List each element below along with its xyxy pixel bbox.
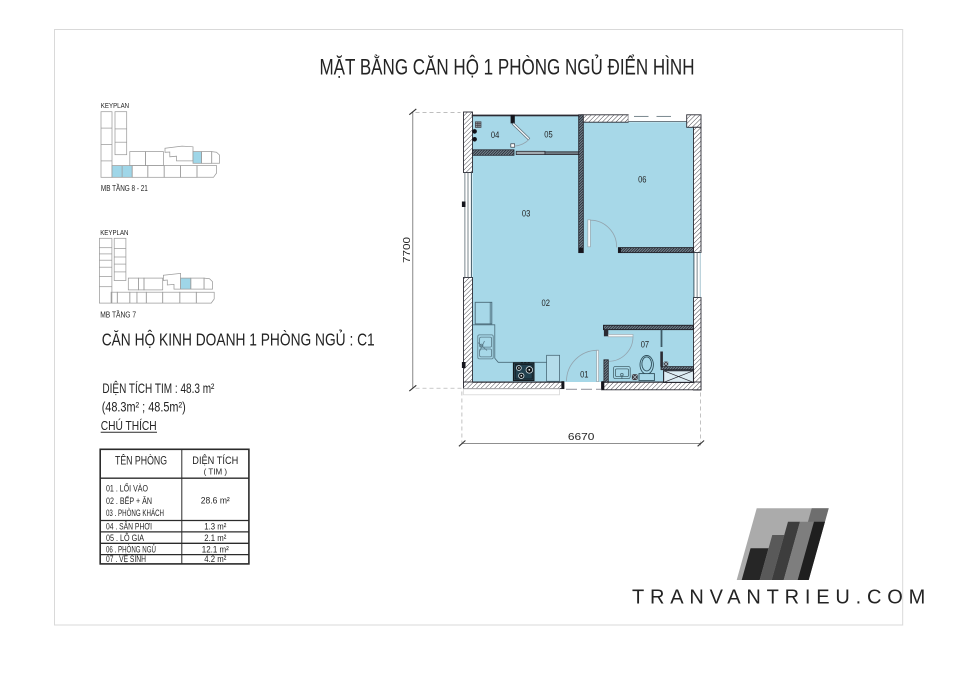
svg-text:CHÚ THÍCH: CHÚ THÍCH (101, 418, 157, 433)
svg-text:TRANVANTRIEU.COM: TRANVANTRIEU.COM (632, 586, 931, 608)
svg-text:07: 07 (641, 339, 649, 350)
svg-text:28.6 m²: 28.6 m² (201, 495, 230, 505)
svg-text:02: 02 (542, 298, 550, 309)
svg-text:DIỆN TÍCH TIM : 48.3 m²: DIỆN TÍCH TIM : 48.3 m² (102, 380, 214, 396)
svg-text:TÊN PHÒNG: TÊN PHÒNG (115, 455, 167, 468)
svg-text:6670: 6670 (568, 432, 595, 443)
svg-text:04 . SÂN PHƠI: 04 . SÂN PHƠI (106, 522, 152, 532)
svg-text:06 . PHÒNG NGỦ: 06 . PHÒNG NGỦ (106, 543, 156, 554)
svg-text:02 . BẾP + ĂN: 02 . BẾP + ĂN (106, 496, 152, 506)
svg-text:01: 01 (580, 370, 588, 381)
svg-text:1.3 m²: 1.3 m² (204, 522, 226, 532)
svg-text:(48.3m² ; 48.5m²): (48.3m² ; 48.5m²) (102, 398, 186, 414)
svg-text:MB TẦNG 7: MB TẦNG 7 (100, 310, 136, 320)
svg-text:07 . VỆ SINH: 07 . VỆ SINH (106, 554, 146, 564)
svg-text:KEYPLAN: KEYPLAN (101, 101, 129, 110)
svg-text:05: 05 (544, 129, 552, 140)
svg-text:04: 04 (491, 130, 500, 141)
svg-text:03 . PHÒNG KHÁCH: 03 . PHÒNG KHÁCH (106, 508, 164, 518)
svg-text:12.1 m²: 12.1 m² (202, 544, 229, 554)
svg-text:MẶT BẰNG CĂN HỘ 1 PHÒNG NGỦ Đ: MẶT BẰNG CĂN HỘ 1 PHÒNG NGỦ ĐIỂN HÌNH (320, 55, 695, 80)
svg-text:DIỆN TÍCH: DIỆN TÍCH (192, 454, 238, 467)
svg-text:KEYPLAN: KEYPLAN (100, 228, 128, 237)
svg-text:01 . LỐI VÀO: 01 . LỐI VÀO (106, 482, 148, 493)
svg-text:4.2 m²: 4.2 m² (204, 554, 226, 564)
svg-text:( TIM ): ( TIM ) (204, 467, 228, 476)
svg-text:CĂN HỘ KINH DOANH 1 PHÒNG NGỦ: CĂN HỘ KINH DOANH 1 PHÒNG NGỦ : C1 (102, 329, 375, 350)
svg-text:MB TẦNG 8 - 21: MB TẦNG 8 - 21 (101, 183, 148, 193)
svg-text:06: 06 (638, 174, 646, 185)
svg-text:03: 03 (522, 209, 530, 220)
svg-text:2.1 m²: 2.1 m² (204, 533, 226, 543)
svg-text:05 . LÔ GIA: 05 . LÔ GIA (106, 533, 145, 543)
svg-text:7700: 7700 (402, 237, 413, 263)
